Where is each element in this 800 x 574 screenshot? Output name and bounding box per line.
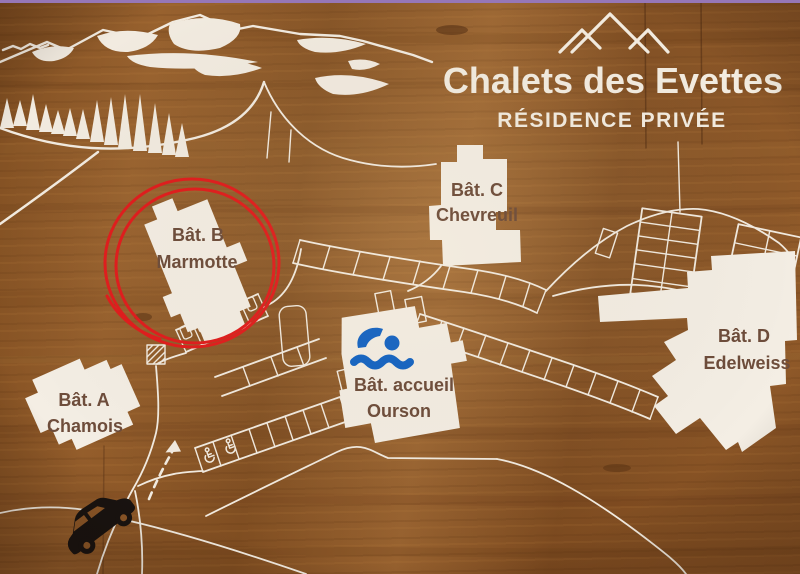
photo-edge-artifact	[0, 0, 800, 3]
wooden-site-map-photo: Bât. A Chamois Bât. C Chevreuil Bât. B M…	[0, 0, 800, 574]
photo-vignette	[0, 0, 800, 574]
site-map: Bât. A Chamois Bât. C Chevreuil Bât. B M…	[0, 0, 800, 574]
